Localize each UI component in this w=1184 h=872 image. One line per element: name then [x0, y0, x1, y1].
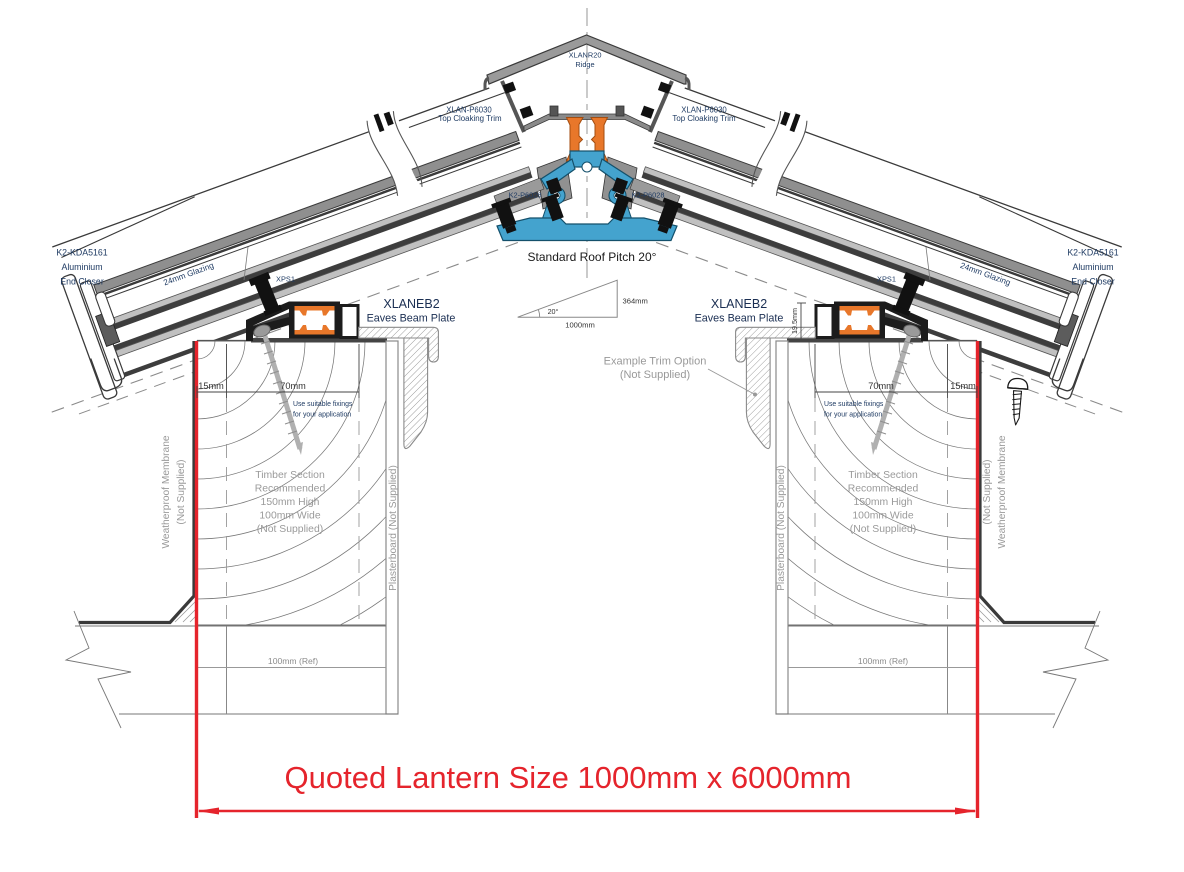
svg-text:Timber Section: Timber Section [848, 470, 918, 481]
svg-text:(Not Supplied): (Not Supplied) [620, 369, 690, 381]
svg-text:XLANEB2: XLANEB2 [383, 297, 439, 311]
svg-text:100mm Wide: 100mm Wide [852, 511, 913, 522]
svg-text:20°: 20° [548, 307, 559, 316]
svg-text:Plasterboard (Not Supplied): Plasterboard (Not Supplied) [776, 465, 787, 591]
svg-text:150mm High: 150mm High [854, 497, 913, 508]
svg-text:Quoted Lantern Size 1000mm x 6: Quoted Lantern Size 1000mm x 6000mm [285, 760, 852, 795]
svg-text:70mm: 70mm [868, 381, 894, 391]
svg-text:Recommended: Recommended [255, 484, 326, 495]
svg-text:Plasterboard (Not Supplied): Plasterboard (Not Supplied) [388, 465, 399, 591]
svg-text:Standard Roof Pitch 20°: Standard Roof Pitch 20° [528, 250, 657, 264]
svg-text:(Not Supplied): (Not Supplied) [982, 459, 993, 524]
svg-text:Timber Section: Timber Section [255, 470, 325, 481]
svg-text:(Not Supplied): (Not Supplied) [257, 524, 323, 535]
svg-text:(Not Supplied): (Not Supplied) [850, 524, 916, 535]
svg-text:Top Cloaking Trim: Top Cloaking Trim [438, 114, 502, 123]
svg-text:Weatherproof Membrane: Weatherproof Membrane [161, 435, 172, 548]
svg-text:100mm Wide: 100mm Wide [259, 511, 320, 522]
svg-text:1000mm: 1000mm [565, 321, 595, 330]
svg-text:Top Cloaking Trim: Top Cloaking Trim [672, 114, 736, 123]
svg-text:XPS1: XPS1 [877, 275, 896, 284]
svg-text:100mm (Ref): 100mm (Ref) [268, 656, 318, 666]
svg-text:364mm: 364mm [623, 297, 648, 306]
svg-text:Aluminium: Aluminium [1072, 262, 1113, 272]
svg-text:End Closer: End Closer [1071, 277, 1115, 287]
svg-text:Use suitable fixings: Use suitable fixings [293, 401, 353, 408]
svg-text:K2-P6028: K2-P6028 [509, 191, 542, 200]
svg-text:K2-KDA5161: K2-KDA5161 [56, 248, 107, 258]
svg-text:Aluminium: Aluminium [61, 262, 102, 272]
svg-text:Example Trim Option: Example Trim Option [604, 356, 707, 368]
svg-text:15mm: 15mm [950, 381, 976, 391]
svg-text:Weatherproof Membrane: Weatherproof Membrane [997, 435, 1008, 548]
svg-text:XPS1: XPS1 [276, 275, 295, 284]
svg-text:(Not Supplied): (Not Supplied) [176, 459, 187, 524]
svg-text:Eaves Beam Plate: Eaves Beam Plate [367, 313, 456, 325]
svg-text:K2-KDA5161: K2-KDA5161 [1067, 248, 1118, 258]
svg-text:for your application: for your application [293, 412, 351, 419]
svg-text:End Closer: End Closer [60, 277, 104, 287]
svg-text:XLANR20: XLANR20 [569, 51, 602, 60]
svg-text:Eaves Beam Plate: Eaves Beam Plate [695, 313, 784, 325]
svg-text:Use suitable fixings: Use suitable fixings [824, 401, 884, 408]
svg-text:70mm: 70mm [280, 381, 306, 391]
svg-text:150mm High: 150mm High [261, 497, 320, 508]
svg-text:Recommended: Recommended [848, 484, 919, 495]
svg-text:Ridge: Ridge [575, 60, 594, 69]
svg-text:100mm (Ref): 100mm (Ref) [858, 656, 908, 666]
svg-text:15mm: 15mm [198, 381, 224, 391]
svg-text:for your application: for your application [824, 412, 882, 419]
svg-text:XLANEB2: XLANEB2 [711, 297, 767, 311]
svg-text:19.5mm: 19.5mm [790, 308, 799, 334]
svg-text:K2-P6028: K2-P6028 [632, 191, 665, 200]
